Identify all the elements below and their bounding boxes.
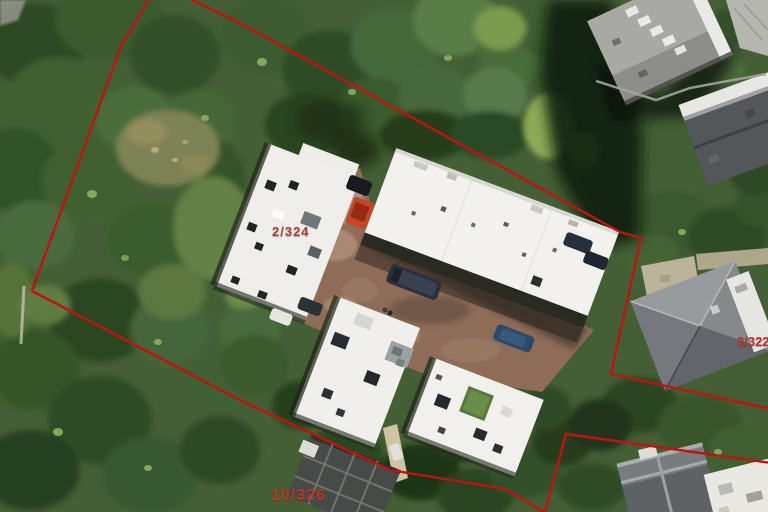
satellite-imagery <box>0 0 768 512</box>
aerial-map-viewport[interactable]: 2/324 10/326 3/322 <box>0 0 768 512</box>
